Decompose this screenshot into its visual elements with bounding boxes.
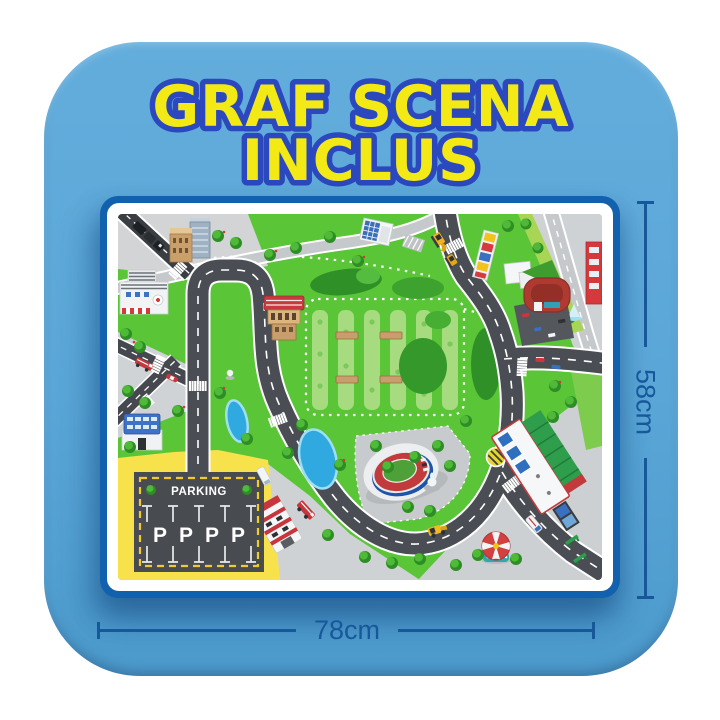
parking-spot-p4: P (231, 524, 245, 547)
carousel (481, 532, 511, 564)
width-dimension-line (98, 629, 296, 632)
play-mat: PARKING P P P P (100, 196, 620, 598)
small-red-car (535, 358, 544, 362)
product-image-page: { "title": { "line1": "GRAF SCENA", "lin… (0, 0, 720, 720)
height-dimension-cap-top (637, 201, 654, 204)
parking-lot: PARKING P P P P (134, 472, 264, 572)
height-dimension-line (644, 458, 647, 598)
width-dimension-label: 78cm (296, 615, 398, 646)
play-mat-border: PARKING P P P P (107, 203, 613, 591)
height-dimension-label: 58cm (630, 350, 660, 455)
height-dimension-line (644, 203, 647, 347)
parking-spot-p2: P (179, 524, 193, 547)
parking-spot-p1: P (153, 524, 167, 547)
parking-sign-text: PARKING (171, 486, 227, 498)
width-dimension-cap-left (97, 622, 100, 639)
title-line-2: INCLUS (242, 128, 480, 194)
product-title: GRAF SCENA INCLUS (44, 58, 678, 208)
height-dimension-cap-bottom (637, 596, 654, 599)
right-edge-shop (586, 242, 602, 304)
play-mat-artwork: PARKING P P P P (118, 214, 602, 580)
width-dimension-line (398, 629, 594, 632)
width-dimension-cap-right (592, 622, 595, 639)
parking-spot-p3: P (205, 524, 219, 547)
